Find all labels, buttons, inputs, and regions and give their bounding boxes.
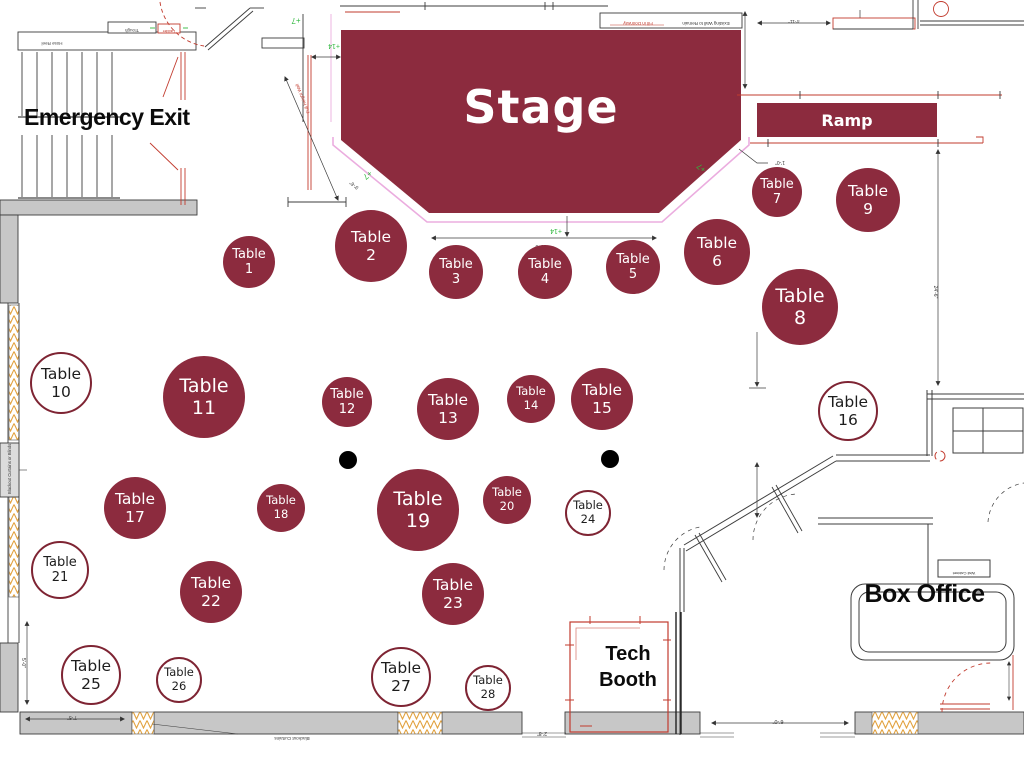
column-dot-2 xyxy=(601,450,619,468)
stair-treads-lower xyxy=(18,135,120,198)
trough-label: Trough xyxy=(124,28,139,33)
table-2[interactable]: Table2 xyxy=(335,210,407,282)
floor-plan-canvas: Hose Reel Trough Ladder Fill in Doorway … xyxy=(0,0,1024,759)
table-24[interactable]: Table24 xyxy=(565,490,611,536)
tech-booth-line2: Booth xyxy=(577,667,679,693)
table-number: 28 xyxy=(481,688,496,702)
fill-in-doorway-label: Fill in Doorway xyxy=(623,21,653,26)
table-20[interactable]: Table20 xyxy=(483,476,531,524)
table-11[interactable]: Table11 xyxy=(163,356,245,438)
table-number: 22 xyxy=(201,592,221,610)
table-number: 20 xyxy=(500,500,515,514)
existing-wall-label: Existing Wall to Remain xyxy=(682,21,730,26)
ramp-label: Ramp xyxy=(757,103,937,137)
note-plus14-bottom: +14 xyxy=(550,227,562,234)
table-word: Table xyxy=(428,391,468,409)
table-number: 26 xyxy=(172,680,187,694)
tech-booth-label: Tech Booth xyxy=(577,641,679,693)
table-word: Table xyxy=(41,365,81,383)
table-number: 8 xyxy=(794,307,806,329)
ladder-label: Ladder xyxy=(162,29,175,34)
table-17[interactable]: Table17 xyxy=(104,477,166,539)
stage-label: Stage xyxy=(391,80,691,134)
table-number: 11 xyxy=(192,397,216,419)
stage-right-leader: 1'-0" xyxy=(739,149,785,165)
dim-6-0: 6'-0" xyxy=(772,718,783,724)
table-number: 14 xyxy=(524,399,539,413)
box-office-label: Box Office xyxy=(842,580,1007,609)
table-6[interactable]: Table6 xyxy=(684,219,750,285)
table-14[interactable]: Table14 xyxy=(507,375,555,423)
table-number: 23 xyxy=(443,594,463,612)
table-18[interactable]: Table18 xyxy=(257,484,305,532)
table-1[interactable]: Table1 xyxy=(223,236,275,288)
table-word: Table xyxy=(71,657,111,675)
table-number: 1 xyxy=(245,262,253,277)
table-28[interactable]: Table28 xyxy=(465,665,511,711)
table-27[interactable]: Table27 xyxy=(371,647,431,707)
table-number: 2 xyxy=(366,246,376,264)
table-number: 25 xyxy=(81,675,101,693)
table-26[interactable]: Table26 xyxy=(156,657,202,703)
table-19[interactable]: Table19 xyxy=(377,469,459,551)
left-window-wall: Blackout Curtains or Blinds 5'-0" xyxy=(0,215,27,712)
table-21[interactable]: Table21 xyxy=(31,541,89,599)
table-word: Table xyxy=(330,387,364,402)
table-number: 10 xyxy=(51,383,71,401)
table-word: Table xyxy=(232,247,266,262)
table-8[interactable]: Table8 xyxy=(762,269,838,345)
table-word: Table xyxy=(393,488,442,510)
tech-booth-line1: Tech xyxy=(577,641,679,667)
table-word: Table xyxy=(697,234,737,252)
table-word: Table xyxy=(492,486,522,500)
table-23[interactable]: Table23 xyxy=(422,563,484,625)
dim-4-11: 4'-11" xyxy=(788,19,800,24)
door-swing-mid xyxy=(753,485,802,540)
blackout-curtains-side-label: Blackout Curtains or Blinds xyxy=(7,444,12,494)
table-12[interactable]: Table12 xyxy=(322,377,372,427)
dim-7-5: 7'-5" xyxy=(67,714,77,720)
door-swing-left xyxy=(664,527,726,582)
dim-1-0: 1'-0" xyxy=(775,159,785,165)
bottom-right-door xyxy=(940,655,1013,712)
table-word: Table xyxy=(775,285,824,307)
table-number: 3 xyxy=(452,272,460,287)
table-word: Table xyxy=(848,182,888,200)
table-number: 4 xyxy=(541,272,549,287)
table-word: Table xyxy=(439,257,473,272)
table-number: 6 xyxy=(712,252,722,270)
dim-2-8: 2'-8" xyxy=(537,730,547,736)
table-number: 18 xyxy=(274,508,289,522)
table-number: 9 xyxy=(863,200,873,218)
wall-cabinet-label: Wall Cabinet xyxy=(952,571,975,576)
dim-5-0: 5'-0" xyxy=(20,658,26,668)
table-3[interactable]: Table3 xyxy=(429,245,483,299)
dim-24-6: 24'-6" xyxy=(932,286,938,299)
bottom-wall: 7'-5" 2'-8" 6'-0" Blackout Curtains xyxy=(20,712,1024,741)
table-word: Table xyxy=(381,659,421,677)
table-number: 17 xyxy=(125,508,145,526)
table-10[interactable]: Table10 xyxy=(30,352,92,414)
table-number: 24 xyxy=(581,513,596,527)
table-word: Table xyxy=(191,574,231,592)
top-wall: Fill in Doorway Existing Wall to Remain xyxy=(340,2,742,28)
dim-9-6: 9'-6" xyxy=(348,179,360,190)
table-number: 13 xyxy=(438,409,458,427)
table-4[interactable]: Table4 xyxy=(518,245,572,299)
table-word: Table xyxy=(115,490,155,508)
table-25[interactable]: Table25 xyxy=(61,645,121,705)
table-word: Table xyxy=(528,257,562,272)
table-word: Table xyxy=(760,177,794,192)
table-number: 19 xyxy=(406,510,430,532)
table-7[interactable]: Table7 xyxy=(752,167,802,217)
table-number: 27 xyxy=(391,677,411,695)
emergency-exit-label: Emergency Exit xyxy=(24,104,214,131)
table-word: Table xyxy=(473,674,503,688)
table-word: Table xyxy=(616,252,650,267)
table-number: 5 xyxy=(629,267,637,282)
table-word: Table xyxy=(582,381,622,399)
table-word: Table xyxy=(828,393,868,411)
table-number: 15 xyxy=(592,399,612,417)
table-word: Table xyxy=(516,385,546,399)
table-word: Table xyxy=(43,555,77,570)
blackout-curtains-bottom-label: Blackout Curtains xyxy=(274,736,310,741)
note-plus14-left: +14 xyxy=(328,42,340,49)
table-word: Table xyxy=(164,666,194,680)
column-dot-1 xyxy=(339,451,357,469)
table-word: Table xyxy=(433,576,473,594)
table-word: Table xyxy=(266,494,296,508)
table-word: Table xyxy=(351,228,391,246)
door-leaf-top xyxy=(195,8,264,50)
table-9[interactable]: Table9 xyxy=(836,168,900,232)
table-16[interactable]: Table16 xyxy=(818,381,878,441)
table-number: 16 xyxy=(838,411,858,429)
table-15[interactable]: Table15 xyxy=(571,368,633,430)
note-plus7-topleft: +7 xyxy=(291,16,301,25)
table-13[interactable]: Table13 xyxy=(417,378,479,440)
table-22[interactable]: Table22 xyxy=(180,561,242,623)
table-word: Table xyxy=(179,375,228,397)
table-word: Table xyxy=(573,499,603,513)
table-5[interactable]: Table5 xyxy=(606,240,660,294)
hose-reel-label: Hose Reel xyxy=(41,41,62,46)
table-number: 7 xyxy=(773,192,781,207)
table-number: 12 xyxy=(339,402,356,417)
table-number: 21 xyxy=(52,570,69,585)
stage-plus7-left: +7 xyxy=(361,169,374,182)
